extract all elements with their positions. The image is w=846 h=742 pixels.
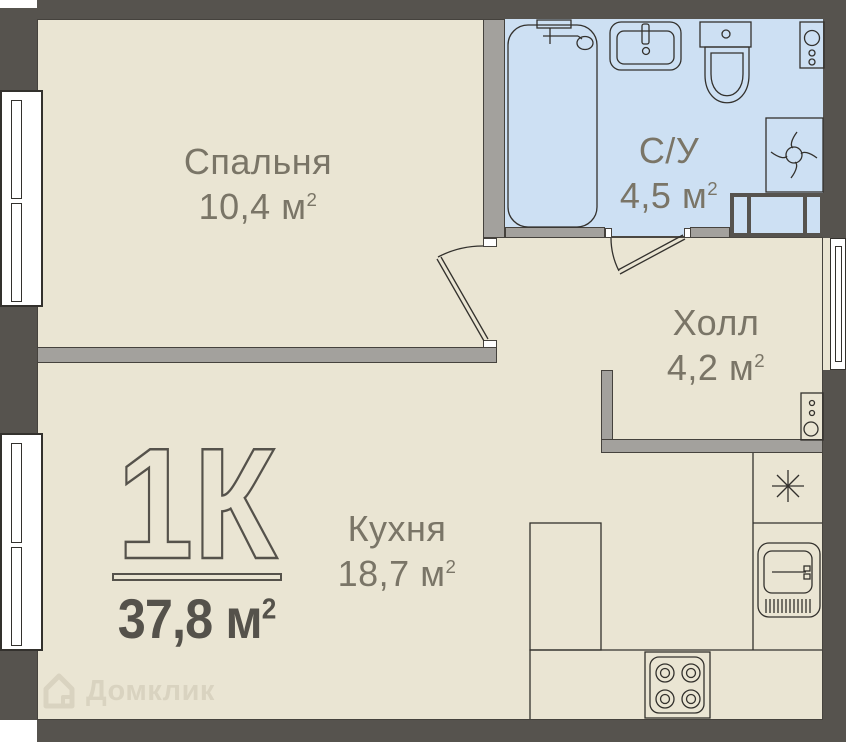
floor-plan: Спальня 10,4 м2 С/У 4,5 м2 Холл 4,2 м2 К… xyxy=(0,0,846,742)
domclick-house-icon xyxy=(40,670,78,712)
apartment-summary: 1К 37,8 м2 xyxy=(67,438,327,651)
room-area: 10,4 м2 xyxy=(128,187,388,227)
bathroom-door-icon xyxy=(611,235,685,274)
snowflake-icon xyxy=(772,470,804,502)
room-area: 4,2 м2 xyxy=(586,348,846,388)
apartment-type-logo: 1К xyxy=(77,438,317,566)
stove-icon xyxy=(645,652,710,718)
room-name: С/У xyxy=(539,131,799,171)
watermark: Домклик xyxy=(40,670,215,712)
room-area: 4,5 м2 xyxy=(539,176,799,216)
pipes-riser-icon xyxy=(800,22,824,68)
apartment-type-text: 1К xyxy=(117,438,277,566)
room-label-bedroom: Спальня 10,4 м2 xyxy=(128,142,388,228)
watermark-text: Домклик xyxy=(86,675,215,708)
total-area: 37,8 м2 xyxy=(118,586,276,651)
room-label-hall: Холл 4,2 м2 xyxy=(586,303,846,389)
washbasin-icon xyxy=(610,22,681,70)
bedroom-door-icon xyxy=(437,246,488,341)
room-name: Спальня xyxy=(128,142,388,182)
kitchen-counter xyxy=(530,453,822,719)
divider-bar xyxy=(112,573,282,581)
kitchen-sink-icon xyxy=(758,543,820,617)
electric-panel-icon xyxy=(801,393,823,440)
room-name: Холл xyxy=(586,303,846,343)
room-label-bathroom: С/У 4,5 м2 xyxy=(539,131,799,217)
toilet-icon xyxy=(700,22,751,103)
